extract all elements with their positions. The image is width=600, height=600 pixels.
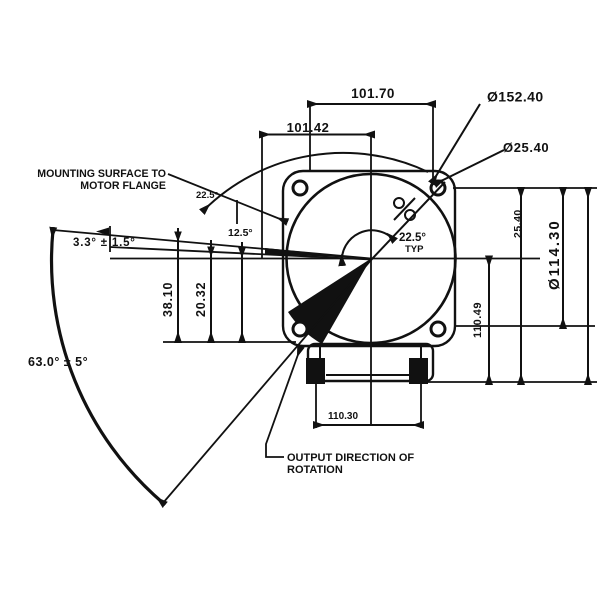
svg-text:38.10: 38.10 xyxy=(161,282,175,317)
svg-text:Ø114.30: Ø114.30 xyxy=(546,219,563,290)
svg-text:Ø25.40: Ø25.40 xyxy=(503,140,549,155)
svg-text:101.42: 101.42 xyxy=(287,120,330,135)
svg-text:3.3° ± 1.5°: 3.3° ± 1.5° xyxy=(73,237,136,249)
svg-text:101.70: 101.70 xyxy=(351,86,395,101)
svg-text:OUTPUT DIRECTION OF: OUTPUT DIRECTION OF xyxy=(287,452,414,464)
svg-text:ROTATION: ROTATION xyxy=(287,464,343,476)
svg-text:MOTOR FLANGE: MOTOR FLANGE xyxy=(80,180,166,192)
svg-text:Ø152.40: Ø152.40 xyxy=(487,89,544,105)
svg-text:12.5°: 12.5° xyxy=(228,227,253,239)
svg-text:MOUNTING SURFACE TO: MOUNTING SURFACE TO xyxy=(37,168,166,180)
svg-text:22.5°: 22.5° xyxy=(196,190,218,201)
svg-text:110.49: 110.49 xyxy=(472,302,484,338)
svg-text:22.5°: 22.5° xyxy=(399,232,426,244)
svg-text:20.32: 20.32 xyxy=(194,282,208,317)
svg-text:TYP: TYP xyxy=(405,244,424,255)
svg-text:25.40: 25.40 xyxy=(512,209,524,238)
svg-text:63.0° ± 5°: 63.0° ± 5° xyxy=(28,355,88,369)
svg-text:110.30: 110.30 xyxy=(328,411,358,422)
